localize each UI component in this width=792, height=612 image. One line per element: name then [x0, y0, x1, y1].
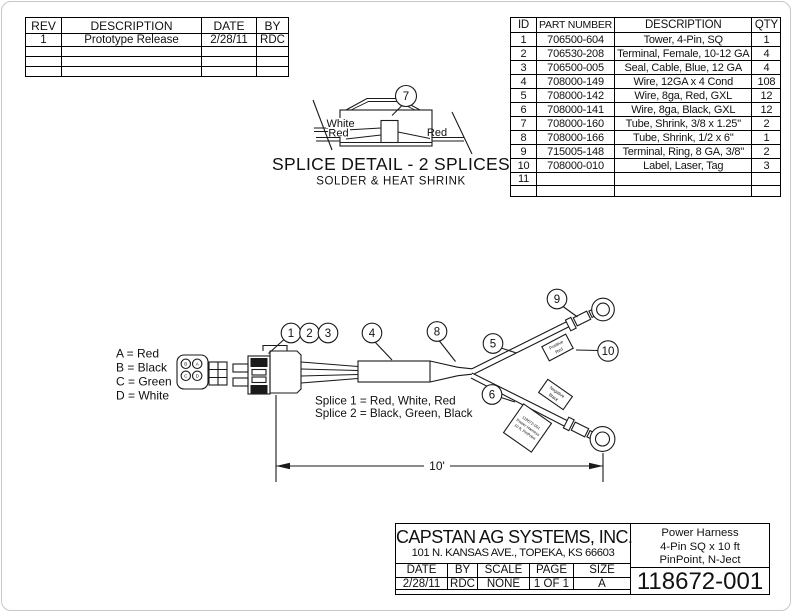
svg-text:9: 9 — [554, 294, 560, 306]
connector-side-view — [233, 346, 301, 395]
field-value-by: RDC — [448, 578, 478, 590]
legend-line: C = Green — [116, 375, 172, 389]
wire-label-red-left: Red — [328, 128, 348, 140]
field-header-scale: SCALE — [478, 564, 530, 578]
field-header-date: DATE — [396, 564, 448, 578]
field-header-by: BY — [448, 564, 478, 578]
ring-terminal-negative — [563, 417, 614, 451]
ring-terminal-positive — [565, 298, 614, 331]
label-tag-negative: Negative Black — [539, 379, 573, 409]
callout-3: 3 — [318, 323, 338, 343]
callout-5: 5 — [483, 334, 516, 354]
pin-label: B — [184, 361, 187, 366]
callout-8: 8 — [427, 322, 455, 362]
splice-detail-subtitle: SOLDER & HEAT SHRINK — [316, 176, 466, 188]
svg-text:2: 2 — [306, 328, 312, 340]
callout-1: 1 — [269, 323, 301, 353]
product-description: Power Harness 4-Pin SQ x 10 ft PinPoint,… — [631, 524, 769, 568]
label-tag-info: 118672-001 Power Harness 10 ft, PinPoint — [504, 404, 552, 452]
title-block-empty-strip — [396, 590, 630, 594]
field-value-size: A — [574, 578, 630, 590]
cable-jacket — [358, 361, 430, 382]
callout-6: 6 — [482, 385, 515, 405]
pin-label: A — [196, 361, 199, 366]
field-header-page: PAGE — [530, 564, 574, 578]
svg-text:8: 8 — [434, 327, 440, 339]
company-address: 101 N. KANSAS AVE., TOPEKA, KS 66603 — [396, 547, 630, 560]
svg-text:3: 3 — [325, 328, 331, 340]
pin-label: C — [184, 373, 188, 378]
svg-text:7: 7 — [403, 91, 409, 103]
callout-2: 2 — [300, 323, 320, 343]
product-line: PinPoint, N-Ject — [631, 554, 769, 568]
company-name: CAPSTAN AG SYSTEMS, INC. — [396, 528, 630, 547]
field-value-scale: NONE — [478, 578, 530, 590]
legend-line: B = Black — [116, 361, 168, 375]
svg-text:1: 1 — [288, 328, 294, 340]
pin-label: D — [196, 373, 200, 378]
svg-text:5: 5 — [490, 339, 496, 351]
svg-text:4: 4 — [369, 328, 376, 340]
title-block: CAPSTAN AG SYSTEMS, INC. 101 N. KANSAS A… — [395, 523, 770, 595]
callout-10: 10 — [576, 341, 618, 361]
drawing-part-number: 118672-001 — [631, 568, 769, 596]
connector-front-view: B A C D — [177, 355, 227, 389]
legend-line: D = White — [116, 389, 169, 403]
callout-4: 4 — [362, 323, 392, 360]
callout-9: 9 — [547, 289, 577, 317]
splice-detail: White Red Red 7 SPLICE DETAIL - 2 SPLICE… — [272, 86, 510, 188]
svg-text:10: 10 — [602, 346, 615, 358]
solder-joint — [381, 121, 398, 143]
dimension-label: 10' — [429, 459, 445, 473]
legend-line: A = Red — [116, 347, 159, 361]
title-block-fields: DATE BY SCALE PAGE SIZE 2/28/11 RDC NONE… — [396, 564, 630, 590]
field-header-size: SIZE — [574, 564, 630, 578]
wire-label-red-right: Red — [427, 127, 447, 139]
splice-detail-title: SPLICE DETAIL - 2 SPLICES — [272, 154, 510, 174]
field-value-date: 2/28/11 — [396, 578, 448, 590]
splice-note-2: Splice 2 = Black, Green, Black — [315, 407, 473, 420]
splice-note-1: Splice 1 = Red, White, Red — [315, 395, 456, 408]
svg-text:6: 6 — [489, 390, 495, 402]
product-line: 4-Pin SQ x 10 ft — [631, 541, 769, 555]
field-value-page: 1 OF 1 — [530, 578, 574, 590]
wire-legend: A = Red B = Black C = Green D = White — [116, 347, 172, 403]
product-line: Power Harness — [631, 527, 769, 541]
harness-drawing: White Red Red 7 SPLICE DETAIL - 2 SPLICE… — [0, 0, 792, 612]
